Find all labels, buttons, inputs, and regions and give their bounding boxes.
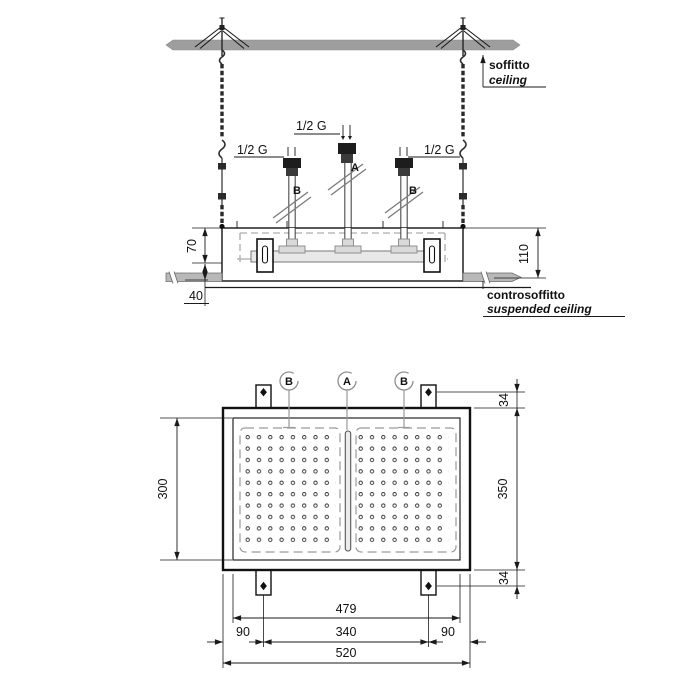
side-elevation-view: soffitto ceiling 1/2 G 1/2 G 1/2 G	[166, 18, 625, 317]
waterfall-slot	[345, 431, 350, 551]
dim-300-text: 300	[156, 479, 170, 500]
ceiling-label-en: ceiling	[489, 73, 528, 87]
technical-drawing-svg: soffitto ceiling 1/2 G 1/2 G 1/2 G	[0, 0, 700, 700]
callout-b-left-text: B	[285, 376, 293, 388]
outlet-b-right-label: B	[409, 185, 417, 197]
nozzle-zone-left	[240, 428, 340, 552]
dim-inner-height: 300	[156, 418, 232, 560]
dim-40-text: 40	[189, 289, 203, 303]
outlet-b-left-label: B	[293, 185, 301, 197]
suspended-ceiling-callout: controsoffitto suspended ceiling	[483, 281, 625, 317]
nozzle-zone-right	[356, 428, 456, 552]
dim-110-text: 110	[517, 244, 531, 264]
suspended-ceiling-left	[166, 272, 222, 284]
outlet-a-label: A	[351, 162, 359, 174]
ceiling-label-it: soffitto	[489, 58, 530, 72]
inlet-left-text: 1/2 G	[237, 143, 268, 157]
dim-total-depth: 110	[465, 228, 546, 278]
pipe-a-center	[338, 143, 356, 240]
callout-b-right-text: B	[400, 376, 408, 388]
plan-view: B A B 300	[156, 372, 525, 668]
dim-90-left-text: 90	[236, 625, 250, 639]
dim-90-right-text: 90	[441, 625, 455, 639]
dim-34-top-text: 34	[497, 393, 511, 407]
inlet-center-text: 1/2 G	[296, 119, 327, 133]
suspension-chain-left	[218, 50, 226, 229]
dim-340-text: 340	[336, 625, 357, 639]
dim-bottom-chain: 479 90 340 90 520	[207, 574, 486, 668]
ceiling-slab	[166, 40, 520, 50]
suspension-chain-right	[459, 50, 467, 229]
inlet-label-left: 1/2 G	[234, 143, 295, 157]
suspended-ceiling-label-it: controsoffitto	[487, 288, 565, 302]
dim-recess-depth: 70	[185, 228, 222, 263]
inlet-label-right: 1/2 G	[400, 143, 460, 157]
inlet-label-center: 1/2 G	[294, 119, 352, 140]
dim-34-bottom-text: 34	[497, 571, 511, 585]
ceiling-callout: soffitto ceiling	[483, 55, 546, 87]
dim-479-text: 479	[336, 602, 357, 616]
mounting-bracket-right	[424, 239, 440, 272]
suspended-ceiling-right	[463, 272, 521, 284]
installation-drawing: soffitto ceiling 1/2 G 1/2 G 1/2 G	[0, 0, 700, 700]
dim-70-text: 70	[185, 239, 199, 253]
suspended-ceiling-label-en: suspended ceiling	[487, 302, 592, 316]
inlet-right-text: 1/2 G	[424, 143, 455, 157]
dim-520-text: 520	[336, 646, 357, 660]
callout-a-text: A	[343, 376, 351, 388]
dim-ceiling-gap: 40	[184, 264, 209, 306]
mounting-bracket-left	[257, 239, 273, 272]
dim-350-text: 350	[496, 479, 510, 500]
plenum-box	[222, 221, 463, 281]
